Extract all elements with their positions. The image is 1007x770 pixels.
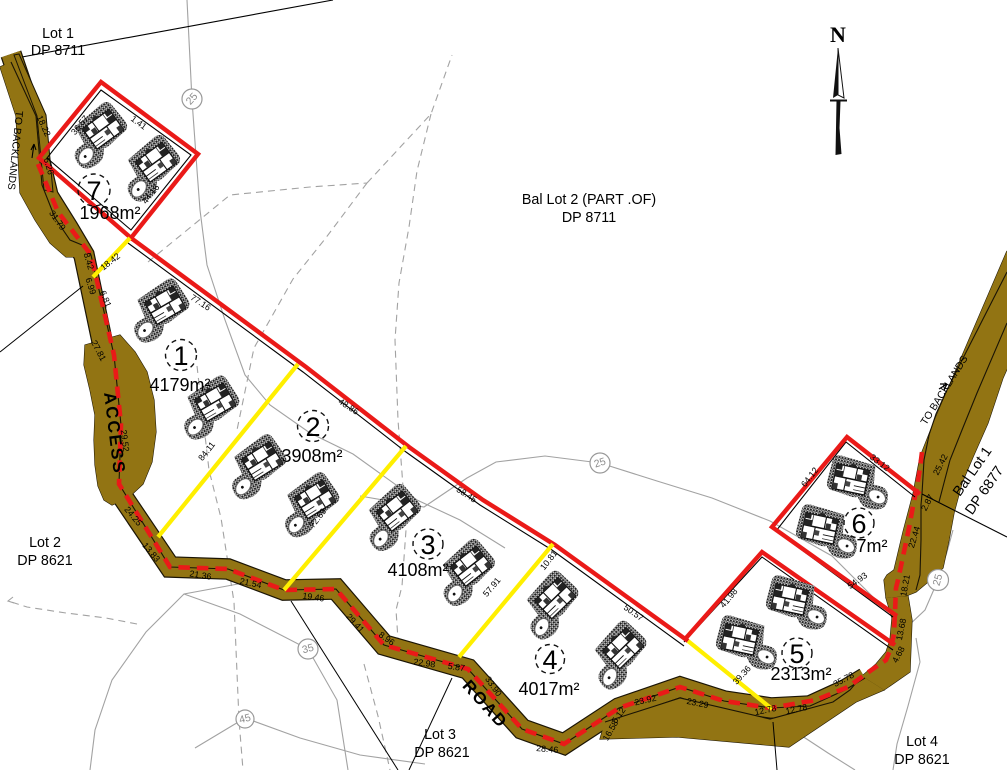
- svg-text:3: 3: [420, 530, 435, 560]
- svg-text:Lot 1: Lot 1: [42, 26, 74, 42]
- svg-text:DP 8711: DP 8711: [31, 43, 85, 59]
- svg-text:Lot 4: Lot 4: [906, 734, 938, 750]
- svg-text:DP 8711: DP 8711: [562, 210, 616, 226]
- svg-text:N: N: [830, 22, 846, 47]
- svg-text:DP 8621: DP 8621: [17, 553, 72, 569]
- svg-text:DP 8621: DP 8621: [894, 752, 949, 768]
- svg-text:DP 8621: DP 8621: [414, 745, 469, 761]
- svg-text:3908m²: 3908m²: [281, 446, 342, 466]
- svg-text:4179m²: 4179m²: [149, 375, 210, 395]
- svg-text:4017m²: 4017m²: [518, 679, 579, 699]
- svg-text:2: 2: [305, 412, 320, 442]
- svg-text:6: 6: [851, 509, 866, 539]
- svg-text:Bal Lot 2 (PART .OF): Bal Lot 2 (PART .OF): [522, 192, 656, 208]
- svg-text:28.46: 28.46: [536, 743, 559, 755]
- svg-text:7: 7: [86, 176, 101, 206]
- svg-text:4108m²: 4108m²: [387, 560, 448, 580]
- svg-text:Lot 2: Lot 2: [29, 535, 61, 551]
- svg-text:4: 4: [542, 645, 557, 675]
- svg-text:Lot 3: Lot 3: [424, 727, 456, 743]
- svg-text:1968m²: 1968m²: [79, 203, 140, 223]
- svg-text:2313m²: 2313m²: [770, 664, 831, 684]
- svg-text:7m²: 7m²: [857, 536, 888, 556]
- svg-text:1: 1: [173, 341, 188, 371]
